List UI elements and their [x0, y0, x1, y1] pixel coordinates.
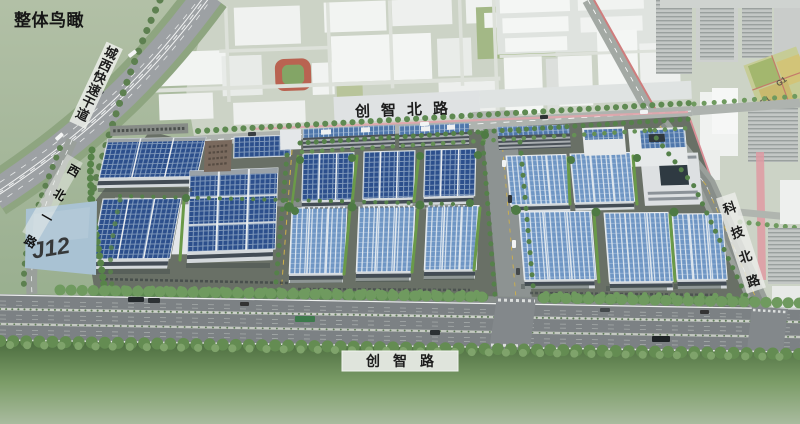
svg-text:创智北路: 创智北路 [354, 99, 460, 121]
svg-text:整体鸟瞰: 整体鸟瞰 [14, 10, 84, 30]
svg-text:创智路: 创智路 [365, 353, 447, 369]
